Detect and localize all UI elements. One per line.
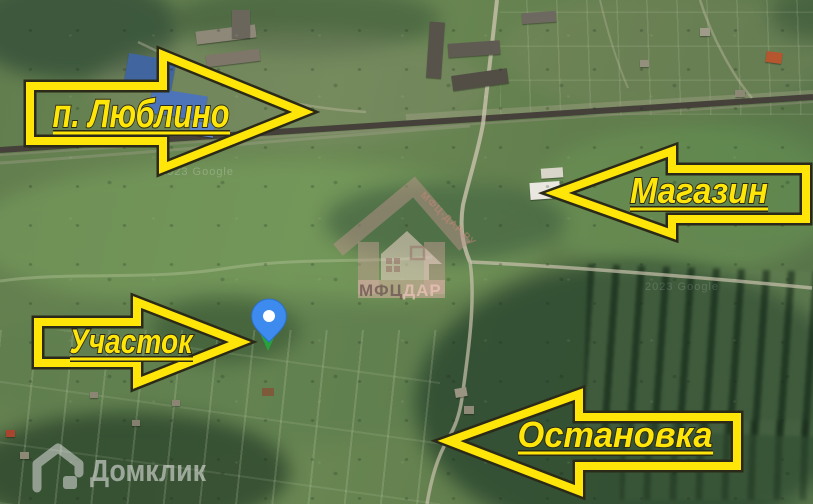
arrow-label-settlement: п. Люблино (53, 92, 230, 136)
arrow-label-plot: Участок (70, 323, 194, 361)
arrow-settlement: п. Люблино (30, 55, 303, 168)
arrow-bus-stop: Остановка (449, 394, 737, 491)
arrow-plot: Участок (38, 302, 240, 383)
arrow-shop: Магазин (557, 151, 806, 234)
arrow-label-shop: Магазин (630, 170, 768, 211)
arrow-label-bus-stop: Остановка (518, 414, 713, 455)
annotation-arrows-layer: п. Люблино Магазин Участок Остановка (0, 0, 813, 504)
satellite-map-image: 2023 Google 2023 Google МФЦ ДАР МФЦ-ДАР.… (0, 0, 813, 504)
